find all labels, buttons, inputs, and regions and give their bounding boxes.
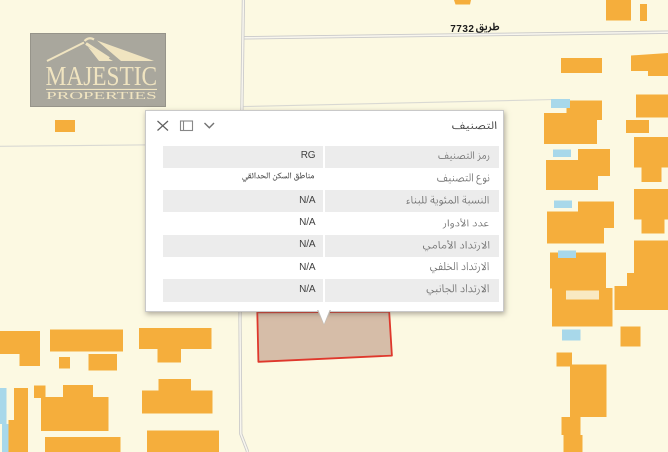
svg-text:7732: 7732 [450,24,474,35]
svg-text:PROPERTIES: PROPERTIES [46,90,157,102]
svg-text:MAJESTIC: MAJESTIC [46,60,158,91]
